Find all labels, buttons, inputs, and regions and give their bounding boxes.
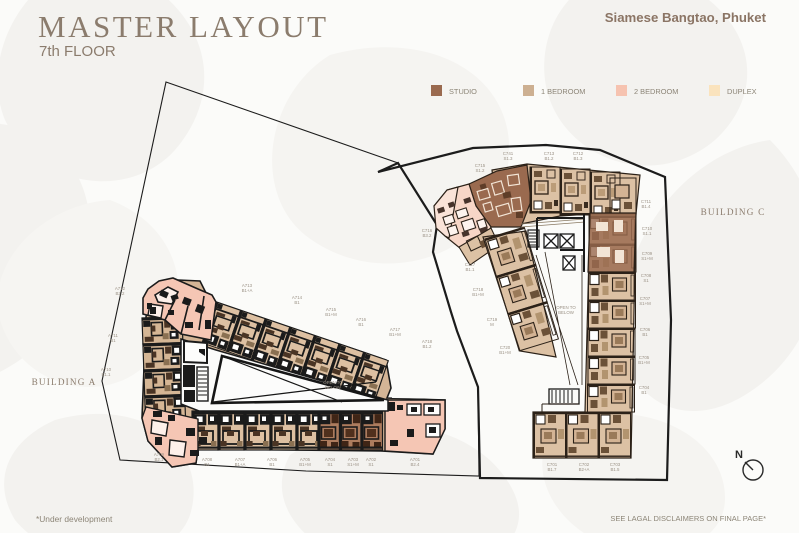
- svg-text:B1.1: B1.1: [101, 372, 111, 377]
- svg-text:B1: B1: [641, 390, 647, 395]
- svg-text:S1: S1: [327, 462, 333, 467]
- svg-text:B1.2: B1.2: [544, 156, 554, 161]
- svg-text:B1.1: B1.1: [465, 267, 475, 272]
- svg-text:B1.7: B1.7: [547, 467, 557, 472]
- svg-text:2 BEDROOM: 2 BEDROOM: [634, 87, 678, 96]
- svg-text:S1: S1: [643, 278, 649, 283]
- svg-text:S1+M: S1+M: [641, 256, 653, 261]
- svg-text:B1+A: B1+A: [235, 462, 246, 467]
- svg-text:B3.2: B3.2: [422, 233, 432, 238]
- svg-text:M: M: [490, 322, 494, 327]
- svg-text:S1.2: S1.2: [475, 168, 485, 173]
- svg-text:STUDIO: STUDIO: [449, 87, 477, 96]
- svg-text:Siamese Bangtao, Phuket: Siamese Bangtao, Phuket: [605, 10, 767, 25]
- svg-text:B1+M: B1+M: [638, 360, 650, 365]
- svg-text:B1+M: B1+M: [389, 332, 401, 337]
- svg-text:SEE LAGAL DISCLAIMERS ON FINAL: SEE LAGAL DISCLAIMERS ON FINAL PAGE*: [610, 514, 766, 523]
- svg-text:B1: B1: [358, 322, 364, 327]
- svg-text:BELOW: BELOW: [325, 385, 342, 390]
- svg-text:B1: B1: [110, 338, 116, 343]
- svg-text:B1+M: B1+M: [325, 312, 337, 317]
- svg-text:B1: B1: [642, 332, 648, 337]
- svg-text:BUILDING C: BUILDING C: [701, 207, 766, 217]
- svg-text:S1.1: S1.1: [642, 231, 652, 236]
- svg-text:B1.2: B1.2: [422, 344, 432, 349]
- svg-text:B1+A: B1+A: [242, 288, 253, 293]
- svg-text:B2.2: B2.2: [115, 291, 125, 296]
- svg-text:N: N: [735, 449, 743, 461]
- svg-text:B1: B1: [269, 462, 275, 467]
- svg-text:B1+M: B1+M: [499, 350, 511, 355]
- svg-text:B1: B1: [204, 462, 210, 467]
- svg-text:B1+M: B1+M: [472, 292, 484, 297]
- svg-text:S1.3: S1.3: [503, 156, 513, 161]
- svg-text:B2.4: B2.4: [410, 462, 420, 467]
- svg-text:B2+A: B2+A: [579, 467, 590, 472]
- svg-text:7th FLOOR: 7th FLOOR: [39, 43, 116, 60]
- svg-text:1 BEDROOM: 1 BEDROOM: [541, 87, 585, 96]
- svg-text:B1.5: B1.5: [610, 467, 620, 472]
- svg-text:DUPLEX: DUPLEX: [727, 87, 757, 96]
- svg-text:MASTER LAYOUT: MASTER LAYOUT: [38, 9, 329, 44]
- svg-text:B2.1: B2.1: [154, 457, 164, 462]
- svg-text:B1.4: B1.4: [641, 204, 651, 209]
- svg-text:BELOW: BELOW: [558, 310, 575, 315]
- svg-text:*Under development: *Under development: [36, 514, 113, 524]
- svg-text:S1+M: S1+M: [347, 462, 359, 467]
- svg-text:BUILDING A: BUILDING A: [32, 377, 97, 387]
- svg-text:S1: S1: [368, 462, 374, 467]
- svg-text:S1+M: S1+M: [639, 301, 651, 306]
- svg-text:B1: B1: [294, 300, 300, 305]
- svg-text:B1.3: B1.3: [573, 156, 583, 161]
- svg-text:B1+M: B1+M: [299, 462, 311, 467]
